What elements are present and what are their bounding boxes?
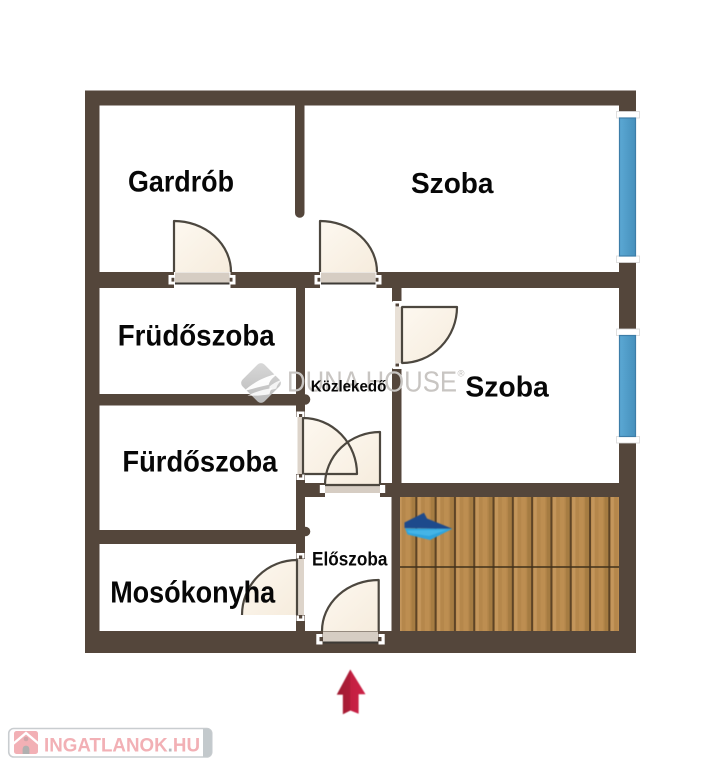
svg-text:Szoba: Szoba — [465, 371, 550, 403]
svg-text:Mosókonyha: Mosókonyha — [110, 575, 276, 610]
svg-text:Früdőszoba: Früdőszoba — [118, 320, 275, 353]
svg-text:Szoba: Szoba — [411, 168, 495, 200]
svg-text:Előszoba: Előszoba — [312, 550, 388, 571]
svg-text:Fürdőszoba: Fürdőszoba — [122, 446, 277, 479]
svg-text:Gardrób: Gardrób — [128, 166, 234, 199]
svg-text:Közlekedő: Közlekedő — [311, 379, 387, 396]
svg-text:INGATLANOK.HU: INGATLANOK.HU — [44, 735, 200, 757]
svg-text:®: ® — [458, 369, 465, 380]
